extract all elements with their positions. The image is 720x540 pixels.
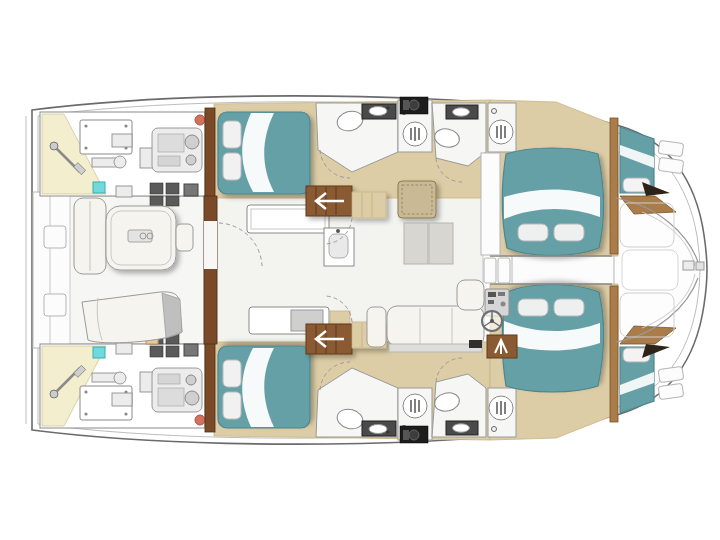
shelf: [658, 157, 684, 173]
aft-step-box-bottom: [44, 294, 66, 316]
catamaran-floor-plan: [0, 0, 720, 540]
steering-wheel-icon: [482, 311, 502, 331]
pillow: [554, 224, 584, 241]
sink-icon: [369, 107, 387, 116]
screw: [84, 146, 87, 149]
foredeck-hatch: [622, 250, 678, 290]
winch: [116, 186, 132, 197]
aft-platform: [33, 192, 71, 348]
salon-aft-wall: [204, 196, 217, 344]
settee-corner: [457, 280, 484, 310]
winch: [116, 343, 132, 354]
forepeak-divider: [610, 118, 618, 254]
floor-plan-drawing: [0, 0, 720, 540]
winch: [150, 183, 163, 194]
washer-appliance: [400, 97, 428, 114]
galley-sink: [329, 234, 348, 258]
forward-cabin-berth: [502, 148, 603, 256]
port-cabin-entry: [481, 153, 500, 255]
aft-step-box-top: [44, 226, 66, 248]
cleat: [150, 196, 163, 206]
floor-mat: [404, 223, 428, 264]
fwd-shower: [488, 103, 516, 152]
steps: [352, 192, 386, 218]
floor-mat: [429, 223, 453, 264]
galley-faucet: [336, 229, 340, 233]
filter-unit: [114, 156, 126, 168]
water-heater-cyan: [93, 182, 105, 193]
cockpit-stool: [176, 224, 193, 251]
screw: [124, 124, 127, 127]
settee-base: [389, 344, 482, 352]
bow-fitting: [683, 261, 694, 270]
cockpit-table: [106, 206, 176, 270]
rattan-table: [398, 181, 436, 218]
sliding-door-opening: [204, 221, 217, 269]
pillow: [223, 121, 241, 148]
winch-base: [184, 184, 198, 196]
aft-cabin-berth: [218, 112, 310, 194]
bow-fitting: [696, 262, 704, 270]
tv-screen: [469, 340, 482, 348]
engine-room: [40, 112, 205, 196]
pillow: [518, 224, 548, 241]
pillow: [223, 153, 241, 180]
winch: [150, 346, 163, 357]
aft-cabin-bulkhead: [205, 108, 215, 198]
forward-door-step: [484, 258, 496, 283]
winch: [166, 346, 179, 357]
winch-base: [184, 344, 198, 356]
screw: [84, 124, 87, 127]
anchor-locker-wedge: [642, 182, 670, 196]
pump-unit: [112, 134, 132, 147]
forward-door-step: [498, 258, 510, 283]
engine-icon: [152, 128, 202, 172]
muffler-red: [195, 115, 205, 125]
armrest: [367, 307, 386, 347]
winch: [166, 183, 179, 194]
cleat: [166, 196, 179, 206]
shelf: [658, 140, 684, 156]
faucet: [387, 107, 390, 110]
sink-icon: [453, 108, 470, 116]
